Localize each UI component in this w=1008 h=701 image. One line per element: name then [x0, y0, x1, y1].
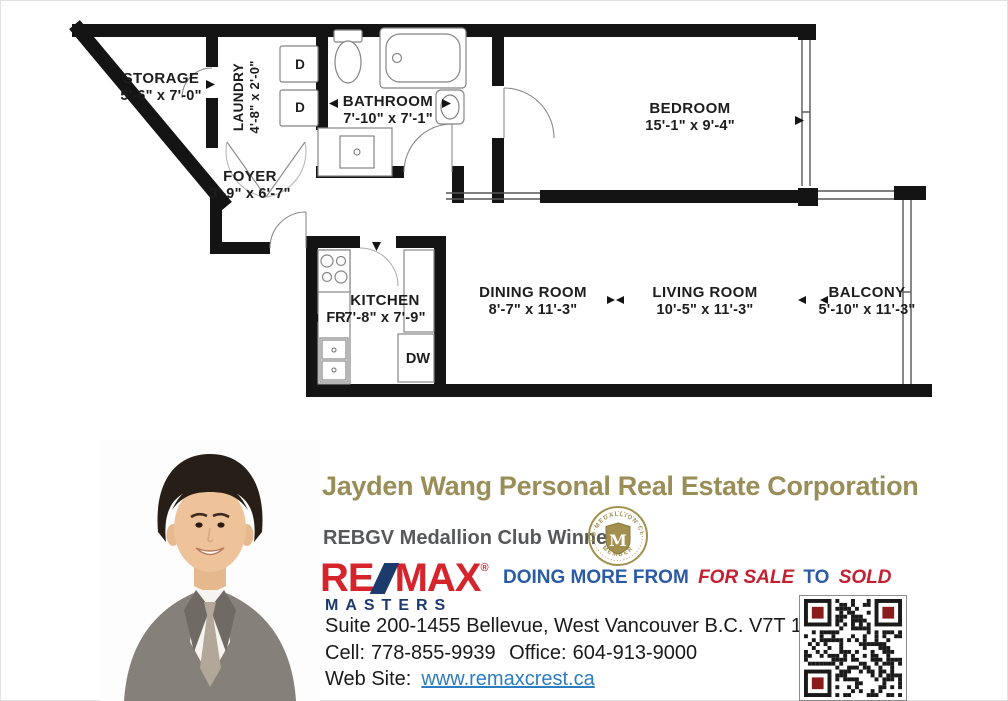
room-label-living: LIVING ROOM 10'-5" x 11'-3" — [635, 284, 775, 319]
room-label-dining: DINING ROOM 8'-7" x 11'-3" — [463, 284, 603, 319]
slogan: DOING MORE FROM FOR SALE TO SOLD — [503, 567, 896, 589]
eye-right — [217, 522, 224, 527]
agent-title: Jayden Wang Personal Real Estate Corpora… — [322, 471, 942, 502]
office-number: 604-913-9000 — [573, 642, 698, 664]
toilet-bowl — [335, 41, 361, 83]
address-line: Suite 200-1455 Bellevue, West Vancouver … — [325, 615, 795, 638]
qr-code-pattern — [803, 599, 903, 697]
floorplan-drawing — [0, 0, 1008, 445]
remax-wordmark-re: RE — [320, 556, 374, 600]
dryer-label: D — [285, 57, 315, 72]
remax-masters-text: MASTERS — [325, 597, 452, 615]
office-label: Office: — [509, 642, 566, 664]
agent-portrait-photo — [100, 440, 320, 701]
fridge-label: FR — [321, 310, 351, 326]
phone-line: Cell:778-855-9939 Office:604-913-9000 — [325, 642, 795, 665]
slogan-part-2: FOR SALE — [698, 567, 794, 588]
room-label-bathroom: BATHROOM 7'-10" x 7'-1" — [320, 93, 456, 128]
eye-left — [195, 522, 202, 527]
medallion-club-seal-icon: MLS MEDALLION CLUB MEMBER M — [586, 503, 650, 567]
windows — [446, 40, 911, 384]
room-label-balcony: BALCONY 5'-10" x 11'-3" — [808, 284, 926, 319]
remax-logo: REMAX® — [320, 558, 489, 598]
room-label-bedroom: BEDROOM 15'-1" x 9'-4" — [610, 100, 770, 135]
flyer-page: STORAGE 5'-6" x 7'-0" LAUNDRY 4'-8" x 2'… — [0, 0, 1008, 701]
cell-number: 778-855-9939 — [371, 642, 496, 664]
website-link[interactable]: www.remaxcrest.ca — [421, 668, 594, 690]
dishwasher-label: DW — [401, 351, 435, 367]
room-label-storage: STORAGE 5'-6" x 7'-0" — [96, 70, 226, 105]
qr-code — [799, 595, 907, 701]
room-label-laundry: LAUNDRY 4'-8" x 2'-0" — [231, 42, 271, 152]
slogan-part-4: SOLD — [839, 567, 892, 588]
website-line: Web Site:www.remaxcrest.ca — [325, 668, 795, 691]
room-label-foyer: FOYER 3'-9" x 6'-7" — [190, 168, 310, 203]
slogan-part-3: TO — [803, 567, 829, 588]
toilet-tank — [334, 30, 362, 42]
registered-trademark-icon: ® — [480, 562, 488, 574]
award-text: REBGV Medallion Club Winner — [323, 527, 615, 550]
slogan-part-1: DOING MORE FROM — [503, 567, 689, 588]
remax-wordmark-max: MAX — [395, 556, 481, 600]
website-label: Web Site: — [325, 668, 411, 690]
svg-text:M: M — [609, 531, 627, 550]
cell-label: Cell: — [325, 642, 365, 664]
washer-label: D — [285, 100, 315, 115]
